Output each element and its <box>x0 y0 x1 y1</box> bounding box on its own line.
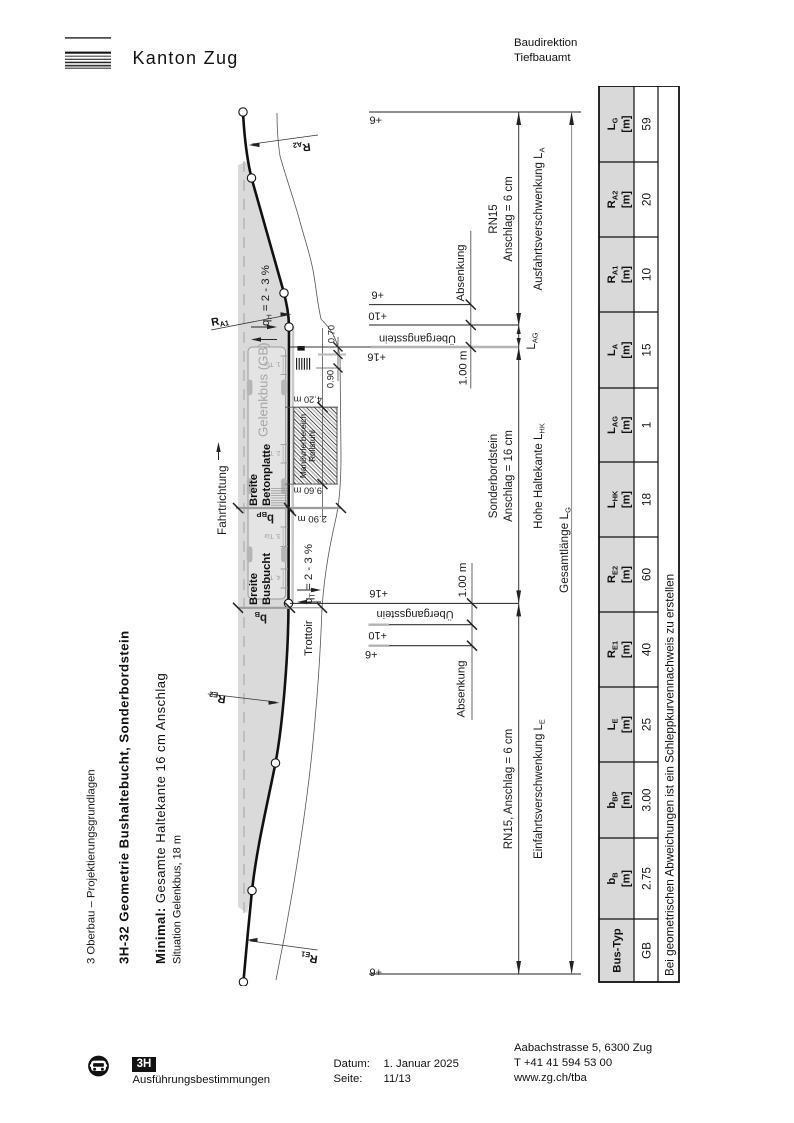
svg-text:0.90: 0.90 <box>326 370 336 388</box>
svg-text:[m]: [m] <box>621 341 633 358</box>
svg-text:[m]: [m] <box>621 641 633 658</box>
svg-text:+6: +6 <box>369 114 382 126</box>
svg-text:+10: +10 <box>368 629 387 641</box>
svg-text:Betonplatte: Betonplatte <box>261 444 273 506</box>
svg-text:[m]: [m] <box>621 791 633 808</box>
svg-text:25: 25 <box>640 718 654 732</box>
svg-text:3H-32 Geometrie Bushaltebucht,: 3H-32 Geometrie Bushaltebucht, Sonderbor… <box>117 630 132 964</box>
svg-text:10: 10 <box>640 268 654 282</box>
svg-text:Situation Gelenkbus, 18 m: Situation Gelenkbus, 18 m <box>172 835 184 964</box>
svg-text:Anschlag = 16 cm: Anschlag = 16 cm <box>503 430 515 522</box>
svg-text:Gelenkbus (GB): Gelenkbus (GB) <box>256 342 271 437</box>
svg-text:[m]: [m] <box>621 870 633 887</box>
svg-text:Gesamtlänge LG: Gesamtlänge LG <box>557 507 573 593</box>
svg-text:[m]: [m] <box>621 266 633 283</box>
svg-text:RN15: RN15 <box>488 204 500 233</box>
svg-text:Bus-Typ: Bus-Typ <box>612 928 624 972</box>
svg-text:Anschlag = 6 cm: Anschlag = 6 cm <box>503 176 515 261</box>
svg-text:Übergangsstein: Übergangsstein <box>377 608 454 620</box>
svg-text:4.20 m: 4.20 m <box>293 395 322 405</box>
svg-text:15: 15 <box>640 343 654 357</box>
svg-text:Breite: Breite <box>248 474 260 506</box>
svg-text:1.00 m: 1.00 m <box>458 351 470 386</box>
svg-text:[m]: [m] <box>621 491 633 508</box>
svg-text:[m]: [m] <box>621 716 633 733</box>
svg-text:2.90 m: 2.90 m <box>298 513 327 524</box>
svg-text:Ausfahrtsverschwenkung LA: Ausfahrtsverschwenkung LA <box>533 147 547 290</box>
svg-text:Fahrtrichtung: Fahrtrichtung <box>215 465 229 535</box>
svg-text:Trottoir: Trottoir <box>303 620 315 656</box>
svg-text:60: 60 <box>640 568 654 582</box>
svg-text:GB: GB <box>640 942 654 959</box>
svg-text:1.00 m: 1.00 m <box>457 563 469 598</box>
svg-text:18: 18 <box>640 493 654 507</box>
svg-text:1: 1 <box>640 422 654 429</box>
svg-text:Busbucht: Busbucht <box>261 553 273 605</box>
svg-text:+6: +6 <box>371 289 384 301</box>
svg-text:RE2: RE2 <box>208 690 226 705</box>
svg-text:Sonderbordstein: Sonderbordstein <box>488 434 500 518</box>
svg-text:Absenkung: Absenkung <box>455 245 467 302</box>
svg-text:40: 40 <box>640 643 654 657</box>
svg-text:[m]: [m] <box>621 191 633 208</box>
svg-text:LAG: LAG <box>526 332 540 349</box>
svg-text:+16: +16 <box>367 351 386 363</box>
svg-text:Absenkung: Absenkung <box>456 661 468 718</box>
svg-text:Rollstuhl: Rollstuhl <box>307 430 317 462</box>
svg-text:+6: +6 <box>365 648 378 660</box>
svg-text:RA1: RA1 <box>210 314 230 330</box>
svg-text:Hohe Haltekante LHK: Hohe Haltekante LHK <box>533 423 547 529</box>
svg-text:3.00: 3.00 <box>640 788 654 811</box>
svg-text:qT = 2 - 3 %: qT = 2 - 3 % <box>303 544 316 604</box>
svg-text:20: 20 <box>640 193 654 207</box>
svg-text:3. Tür: 3. Tür <box>264 532 280 539</box>
svg-text:RA2: RA2 <box>292 139 311 155</box>
svg-text:+6: +6 <box>369 966 382 978</box>
svg-text:Bei geometrischen Abweichungen: Bei geometrischen Abweichungen ist ein S… <box>664 574 677 976</box>
svg-text:9.60 m: 9.60 m <box>293 486 322 496</box>
svg-text:[m]: [m] <box>621 115 633 132</box>
svg-text:2.75: 2.75 <box>640 867 654 890</box>
svg-text:Einfahrtsverschwenkung LE: Einfahrtsverschwenkung LE <box>533 719 547 859</box>
svg-text:Breite: Breite <box>248 573 260 605</box>
svg-text:+16: +16 <box>369 587 388 599</box>
svg-text:Minimal: Gesamte Haltekante 16: Minimal: Gesamte Haltekante 16 cm Anschl… <box>153 673 168 964</box>
svg-text:[m]: [m] <box>621 416 633 433</box>
svg-text:RE1: RE1 <box>300 949 319 965</box>
svg-text:0.70: 0.70 <box>327 325 337 343</box>
svg-text:Übergangsstein: Übergangsstein <box>379 333 456 345</box>
svg-text:RN15, Anschlag = 6 cm: RN15, Anschlag = 6 cm <box>503 729 515 850</box>
svg-text:3 Oberbau – Projektierungsgrun: 3 Oberbau – Projektierungsgrundlagen <box>86 769 98 964</box>
svg-text:+10: +10 <box>368 310 387 322</box>
svg-text:[m]: [m] <box>621 566 633 583</box>
svg-text:59: 59 <box>640 117 654 130</box>
